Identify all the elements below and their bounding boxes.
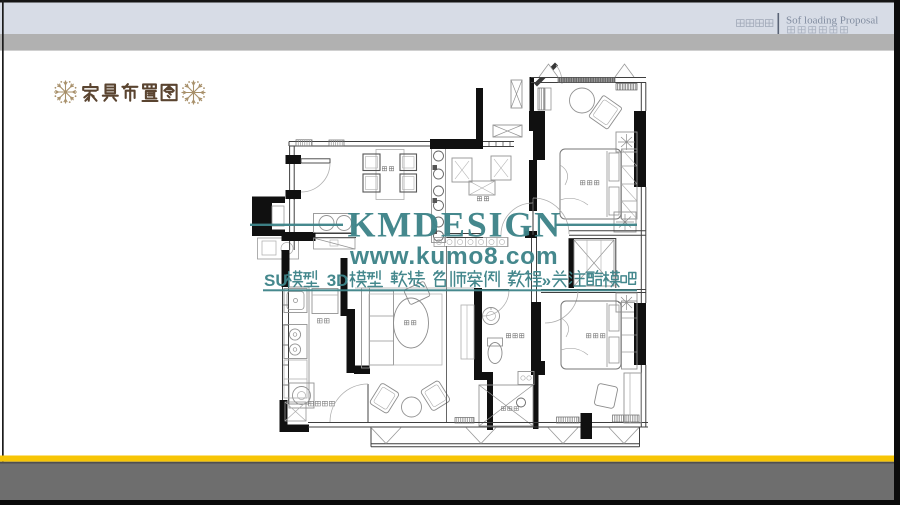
svg-text:KMDESIGN: KMDESIGN [348, 205, 562, 245]
svg-text:www.kumo8.com: www.kumo8.com [349, 243, 558, 270]
svg-text:»: » [542, 271, 551, 290]
svg-text:Sof loading Proposal: Sof loading Proposal [786, 15, 878, 27]
svg-text:SU: SU [264, 271, 288, 290]
svg-text:3D: 3D [327, 271, 349, 290]
